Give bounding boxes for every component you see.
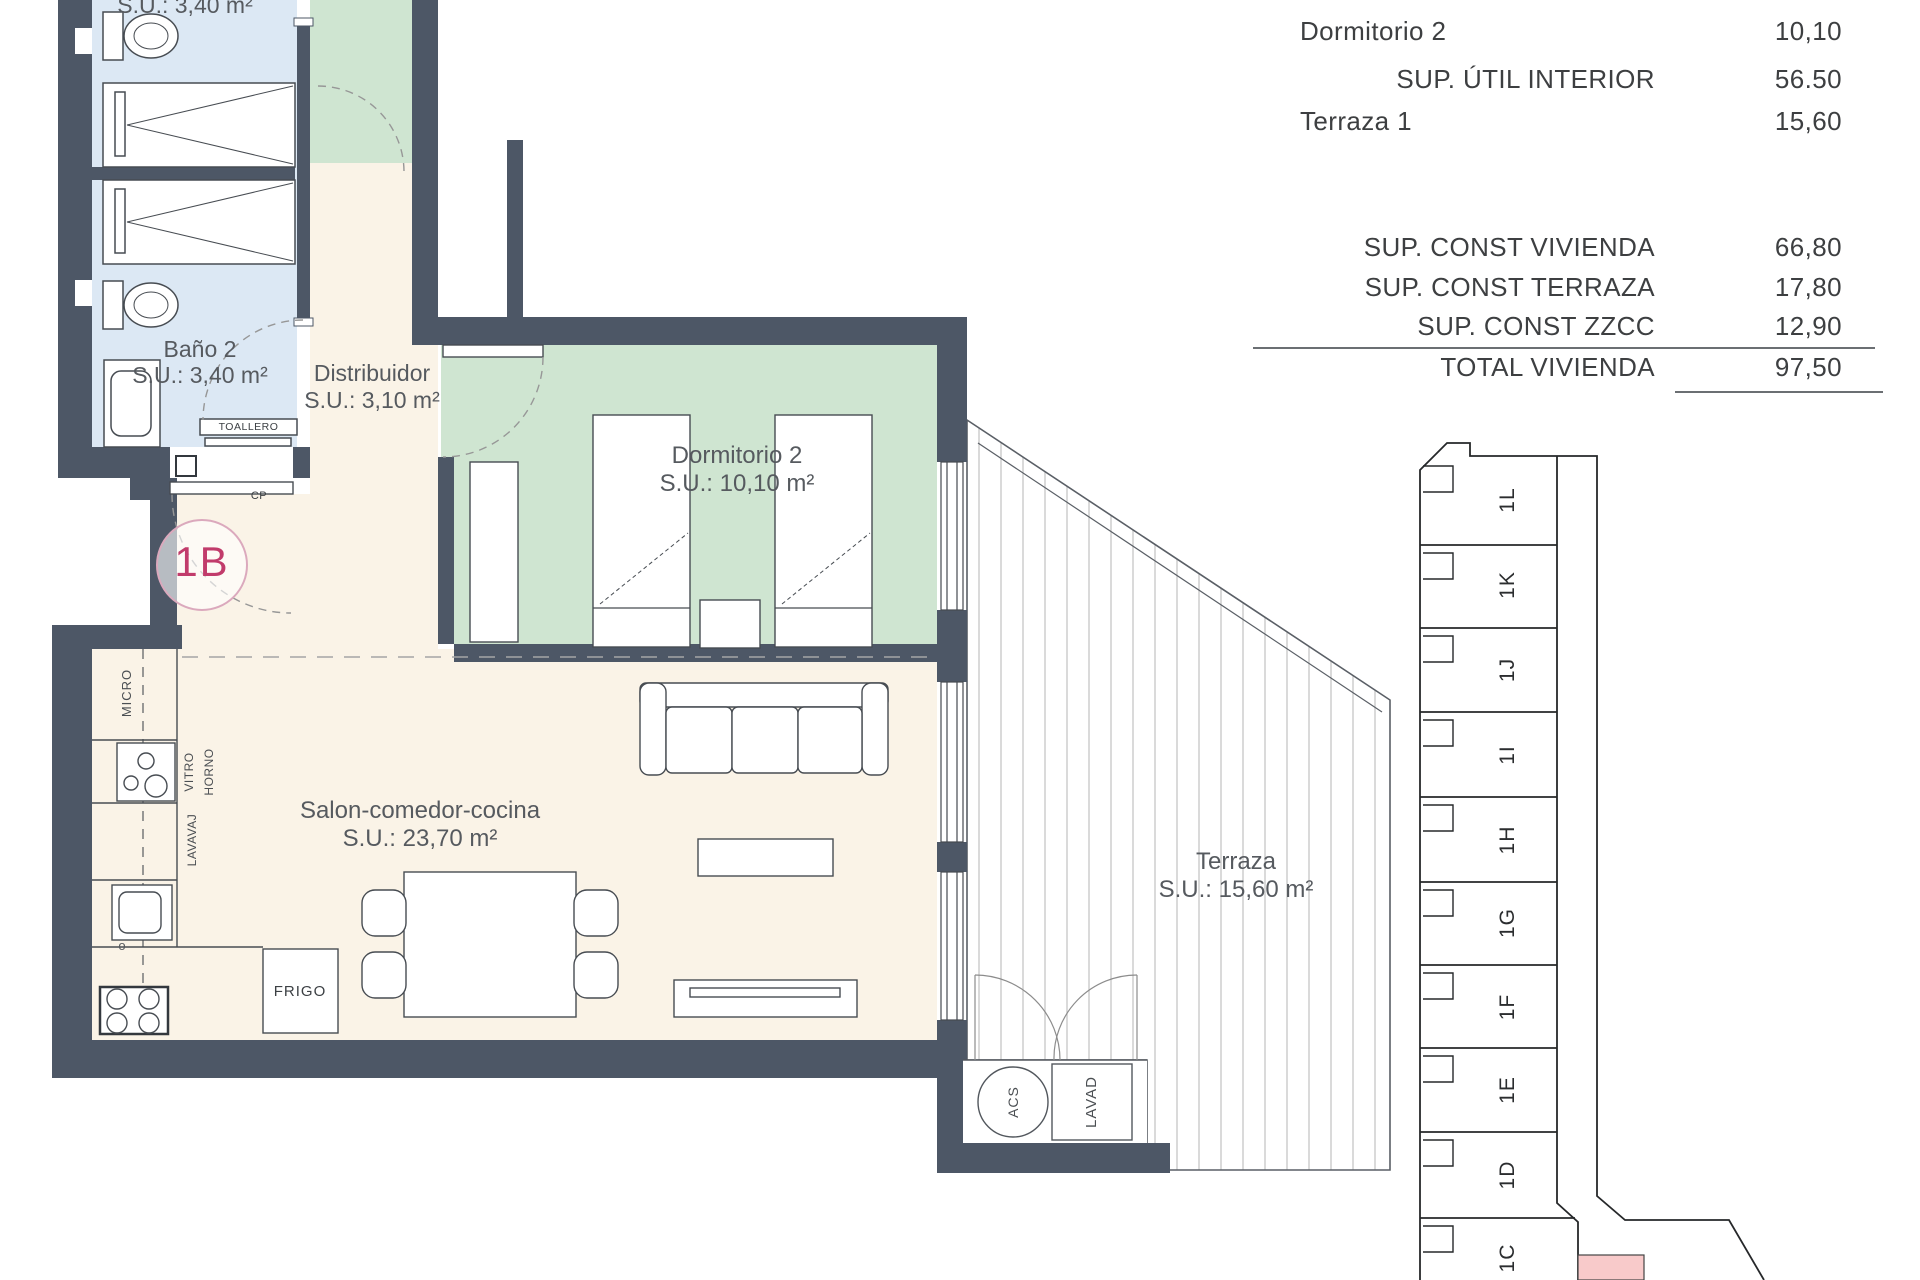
row-label: TOTAL VIVIENDA	[1240, 352, 1655, 383]
oven-label: HORNO	[200, 702, 218, 842]
row-label: SUP. CONST ZZCC	[1240, 311, 1655, 342]
washer-label: LAVAD	[1083, 1032, 1101, 1172]
terrace-deck	[967, 420, 1390, 1170]
terrace-name-label: Terraza	[1136, 848, 1336, 876]
row-value: 17,80	[1670, 272, 1842, 303]
hall-name-label: Distribuidor	[282, 360, 462, 387]
towel-rail-label: TOALLERO	[200, 421, 297, 433]
living-area-label: S.U.: 23,70 m²	[290, 825, 550, 853]
row-value: 15,60	[1670, 106, 1842, 137]
bath2-area-label: S.U.: 3,40 m²	[110, 362, 290, 389]
keyplan-highlight-unit	[1578, 1255, 1644, 1280]
row-label: SUP. CONST TERRAZA	[1240, 272, 1655, 303]
row-value: 10,10	[1670, 16, 1842, 47]
row-value: 56.50	[1670, 64, 1842, 95]
floorplan-sheet: S.U.: 3,40 m² Baño 2 S.U.: 3,40 m² Distr…	[0, 0, 1920, 1280]
keyplan-outline	[1420, 443, 1764, 1280]
bath1-area-label: S.U.: 3,40 m²	[95, 0, 275, 19]
row-label: Dormitorio 2	[1300, 16, 1700, 47]
row-label: SUP. CONST VIVIENDA	[1240, 232, 1655, 263]
bedroom2-name-label: Dormitorio 2	[637, 442, 837, 470]
row-value: 12,90	[1670, 311, 1842, 342]
floorplan-drawing	[0, 0, 1920, 1280]
bedroom2-area-label: S.U.: 10,10 m²	[637, 470, 837, 498]
table-separator	[1253, 347, 1875, 349]
entrance-door-label: CP	[239, 490, 279, 502]
terrace-area-label: S.U.: 15,60 m²	[1136, 876, 1336, 904]
living-name-label: Salon-comedor-cocina	[290, 797, 550, 825]
hall-area-label: S.U.: 3,10 m²	[282, 387, 462, 414]
unit-badge: 1B	[142, 538, 262, 586]
fridge-label: FRIGO	[260, 983, 340, 1000]
microwave-label: MICRO	[118, 623, 136, 763]
bath2-name-label: Baño 2	[110, 336, 290, 363]
water-heater-label: ACS	[1004, 1032, 1022, 1172]
keyplan-unit-label: 1C	[1499, 1188, 1517, 1280]
total-underline	[1675, 391, 1883, 393]
row-value: 97,50	[1670, 352, 1842, 383]
row-value: 66,80	[1670, 232, 1842, 263]
row-label: Terraza 1	[1300, 106, 1700, 137]
outlet-label: o	[112, 938, 132, 953]
window-bands	[941, 462, 963, 1020]
row-label: SUP. ÚTIL INTERIOR	[1240, 64, 1655, 95]
dishwasher-label: LAVAVAJ	[183, 770, 201, 910]
